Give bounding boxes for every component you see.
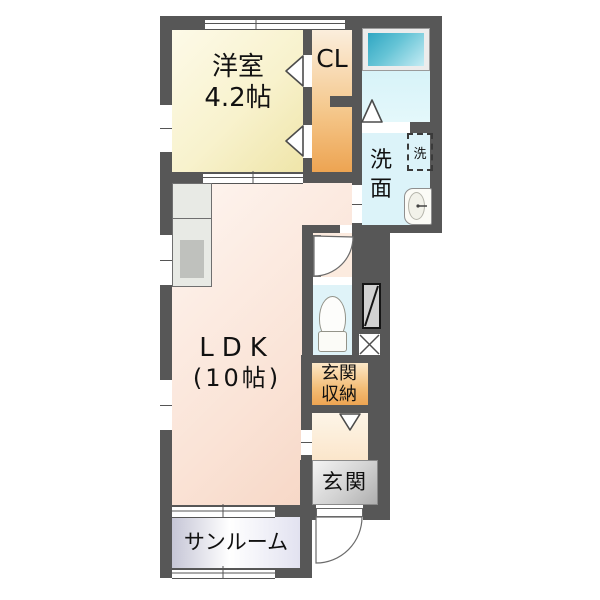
wall-left (160, 16, 172, 578)
vent-box-icon (359, 334, 380, 355)
window-kitchen-left-icon (160, 235, 172, 285)
entrance-storage-label: 玄関 収納 (310, 364, 368, 405)
wall-under-storage (310, 405, 390, 413)
bathtub-icon (368, 33, 424, 66)
entrance-label: 玄関 (312, 470, 378, 495)
washer-space: 洗 (407, 133, 433, 171)
sunroom-label: サンルーム (172, 530, 300, 555)
nook-door-leaf (313, 235, 321, 277)
doorway-ldk-washroom (352, 185, 362, 223)
entrance-door-arc (316, 517, 362, 563)
floor-plan: 洗 (0, 0, 600, 600)
entrance-door-leaf (316, 508, 363, 517)
slidingdoor-western-ldk-icon (203, 173, 303, 184)
washbasin-bowl (408, 192, 425, 220)
washer-space-label: 洗 (413, 143, 426, 162)
window-top-icon (205, 19, 345, 30)
wall-western-right (303, 30, 312, 183)
wall-nook-top (302, 225, 340, 233)
doorway-ldk-hall (301, 430, 312, 455)
window-ldk-sunroom-icon (172, 506, 275, 518)
washroom-label: 洗面 (368, 147, 394, 204)
wall-bath-washroom (410, 122, 430, 133)
kitchen-counter-divider (172, 218, 212, 219)
wall-entrance-door-right (363, 505, 390, 520)
doorway-nook-entry (340, 225, 352, 233)
window-western-left-icon (160, 105, 172, 152)
wall-closet-stub (330, 96, 352, 107)
window-sunroom-bottom-icon (172, 569, 275, 579)
entrance-hall (312, 413, 368, 460)
doorway-western-closet-lower (303, 125, 312, 158)
wall-toilet-bottom (302, 355, 390, 363)
doorway-nook-toilet (313, 277, 352, 285)
ldk-label: LDK (10帖) (162, 333, 312, 392)
pipe-shaft-icon (362, 283, 381, 329)
doorway-western-closet-upper (303, 55, 312, 87)
doorway-bath-washroom (362, 122, 410, 133)
toilet-tank-icon (318, 331, 347, 352)
closet-label: CL (312, 44, 352, 74)
stove-icon (180, 240, 204, 278)
western-room-label: 洋室 4.2帖 (174, 52, 302, 113)
